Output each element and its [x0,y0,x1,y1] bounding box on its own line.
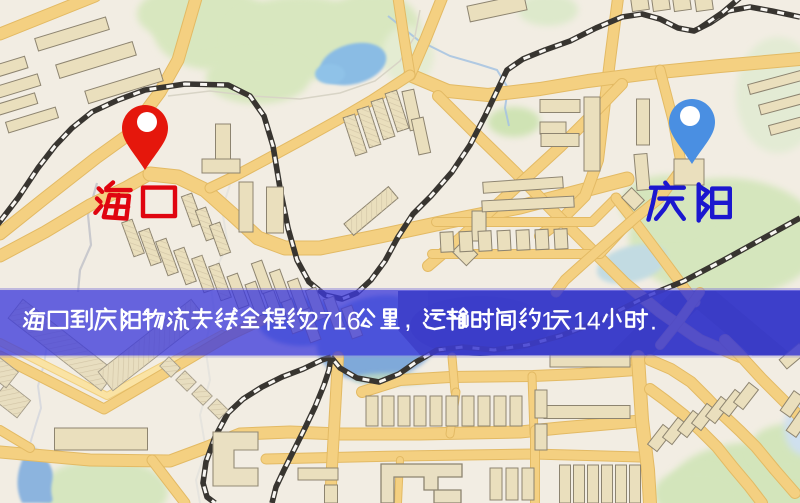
svg-text:1: 1 [541,308,555,336]
svg-text:2716: 2716 [305,308,361,336]
svg-text:,: , [404,303,412,334]
svg-text:.: . [650,308,657,336]
svg-text:14: 14 [573,308,601,336]
